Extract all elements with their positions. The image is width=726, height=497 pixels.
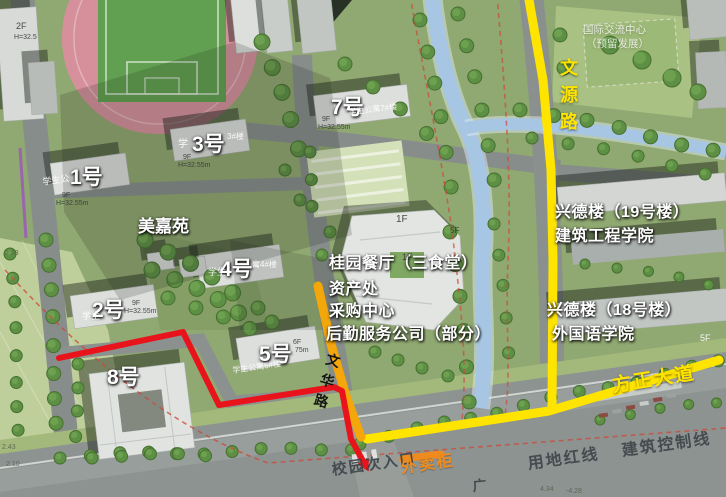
takeout-cabinet-marker bbox=[402, 454, 441, 459]
campus-map bbox=[0, 0, 726, 497]
building-8-complex bbox=[77, 348, 194, 460]
campus-map-screenshot: 1号3号7号2号4号5号8号美嘉苑桂园餐厅（三食堂）资产处采购中心后勤服务公司（… bbox=[0, 0, 726, 497]
